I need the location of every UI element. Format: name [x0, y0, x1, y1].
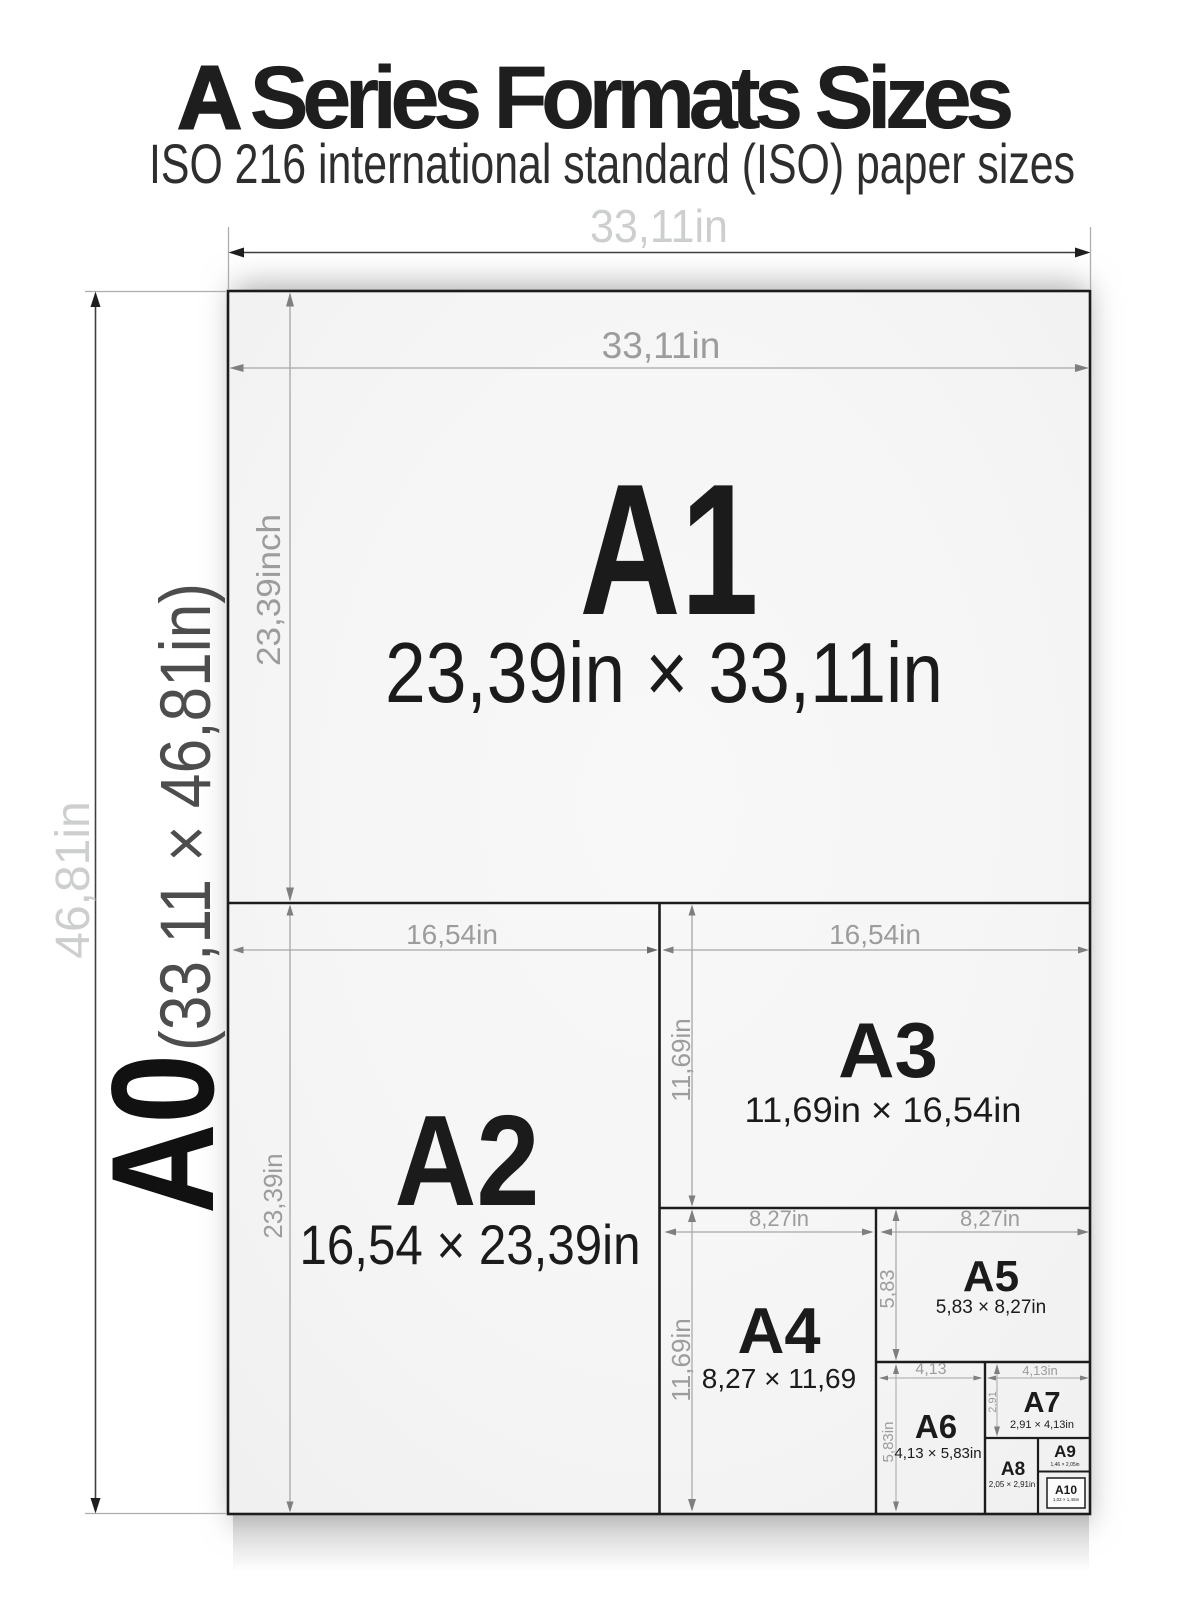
- svg-text:33,11in: 33,11in: [602, 325, 721, 366]
- svg-text:4,13 × 5,83in: 4,13 × 5,83in: [894, 1445, 981, 1462]
- svg-text:A8: A8: [1001, 1459, 1025, 1480]
- svg-text:16,54in: 16,54in: [406, 919, 498, 950]
- svg-text:A9: A9: [1054, 1442, 1076, 1461]
- svg-text:16,54in: 16,54in: [829, 919, 921, 950]
- svg-text:5,83 × 8,27in: 5,83 × 8,27in: [936, 1297, 1046, 1318]
- svg-text:A6: A6: [915, 1408, 957, 1445]
- svg-text:23,39in × 33,11in: 23,39in × 33,11in: [385, 626, 943, 721]
- svg-text:A0: A0: [81, 1054, 244, 1214]
- svg-text:23,39inch: 23,39inch: [250, 514, 287, 666]
- svg-text:2,05 × 2,91in: 2,05 × 2,91in: [989, 1480, 1035, 1489]
- svg-text:23,39in: 23,39in: [258, 1153, 288, 1238]
- svg-text:A5: A5: [963, 1252, 1019, 1301]
- svg-text:33,11in: 33,11in: [590, 200, 728, 252]
- svg-text:11,69in × 16,54in: 11,69in × 16,54in: [745, 1091, 1022, 1130]
- svg-text:4,13: 4,13: [915, 1361, 946, 1378]
- svg-text:11,69in: 11,69in: [666, 1318, 696, 1401]
- svg-text:A7: A7: [1023, 1387, 1060, 1419]
- svg-text:(33,11 × 46,81in): (33,11 × 46,81in): [147, 583, 226, 1051]
- svg-text:A4: A4: [737, 1294, 820, 1367]
- svg-text:2,91 × 4,13in: 2,91 × 4,13in: [1010, 1419, 1074, 1431]
- svg-text:2,91: 2,91: [987, 1391, 999, 1412]
- svg-text:11,69in: 11,69in: [666, 1018, 696, 1101]
- svg-text:4,13in: 4,13in: [1022, 1363, 1057, 1378]
- svg-text:1,02 × 1,46in: 1,02 × 1,46in: [1053, 1497, 1080, 1502]
- svg-text:A3: A3: [838, 1006, 938, 1094]
- svg-text:1,46 × 2,05in: 1,46 × 2,05in: [1050, 1462, 1079, 1468]
- svg-text:A1: A1: [580, 445, 759, 654]
- svg-text:A10: A10: [1055, 1483, 1077, 1497]
- svg-text:16,54 × 23,39in: 16,54 × 23,39in: [300, 1213, 641, 1276]
- svg-text:A2: A2: [395, 1089, 540, 1233]
- svg-text:5,83: 5,83: [877, 1270, 899, 1309]
- svg-text:8,27in: 8,27in: [960, 1206, 1020, 1231]
- svg-text:ISO 216 international standard: ISO 216 international standard (ISO) pap…: [149, 132, 1075, 195]
- svg-text:8,27in: 8,27in: [749, 1206, 809, 1231]
- svg-text:46,81in: 46,81in: [47, 801, 100, 958]
- svg-text:8,27 × 11,69: 8,27 × 11,69: [702, 1363, 856, 1394]
